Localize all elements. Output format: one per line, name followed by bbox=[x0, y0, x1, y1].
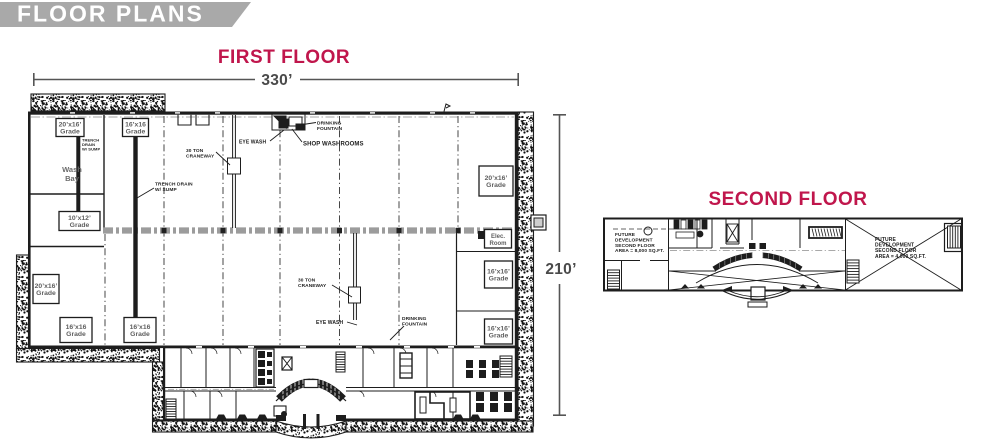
svg-text:Grade: Grade bbox=[60, 129, 80, 136]
svg-text:Wash: Wash bbox=[62, 165, 82, 174]
svg-text:30 TON: 30 TON bbox=[186, 148, 204, 154]
svg-text:Grade: Grade bbox=[486, 182, 506, 189]
svg-text:16’x16: 16’x16 bbox=[125, 122, 146, 129]
svg-text:16’x16: 16’x16 bbox=[66, 324, 87, 331]
svg-text:SHOP WASHROOMS: SHOP WASHROOMS bbox=[303, 142, 364, 148]
svg-text:AREA = 8,000 SQ.FT.: AREA = 8,000 SQ.FT. bbox=[615, 248, 664, 254]
svg-text:16’x16’: 16’x16’ bbox=[487, 269, 510, 276]
svg-text:TRENCH DRAIN: TRENCH DRAIN bbox=[155, 182, 193, 188]
svg-text:Grade: Grade bbox=[126, 129, 146, 136]
svg-text:20’x16’: 20’x16’ bbox=[35, 283, 58, 290]
svg-text:330’: 330’ bbox=[261, 72, 292, 89]
svg-text:Grade: Grade bbox=[489, 333, 509, 340]
svg-text:FIRST FLOOR: FIRST FLOOR bbox=[218, 47, 350, 68]
svg-text:Grade: Grade bbox=[489, 276, 509, 283]
svg-text:Grade: Grade bbox=[70, 222, 90, 229]
svg-text:Elec.: Elec. bbox=[491, 234, 505, 240]
svg-text:CRANEWAY: CRANEWAY bbox=[186, 153, 215, 159]
svg-text:16’x16’: 16’x16’ bbox=[487, 326, 510, 333]
svg-text:Room: Room bbox=[490, 241, 507, 247]
svg-text:SECOND FLOOR: SECOND FLOOR bbox=[615, 243, 655, 249]
svg-text:Grade: Grade bbox=[66, 331, 86, 338]
svg-text:EYE WASH: EYE WASH bbox=[239, 140, 266, 146]
svg-text:20’x16’: 20’x16’ bbox=[485, 175, 508, 182]
svg-text:DRINKING: DRINKING bbox=[402, 316, 427, 322]
svg-text:Bay: Bay bbox=[65, 174, 80, 183]
svg-text:10’x12’: 10’x12’ bbox=[68, 215, 91, 222]
svg-text:FOUNTAIN: FOUNTAIN bbox=[402, 321, 428, 327]
svg-text:210’: 210’ bbox=[545, 261, 576, 278]
svg-text:FUTURE: FUTURE bbox=[615, 232, 636, 238]
svg-text:FLOOR PLANS: FLOOR PLANS bbox=[17, 1, 204, 27]
svg-text:30 TON: 30 TON bbox=[298, 278, 316, 284]
svg-text:EYE WASH: EYE WASH bbox=[316, 320, 343, 326]
svg-text:Grade: Grade bbox=[36, 290, 56, 297]
svg-text:DEVELOPMENT: DEVELOPMENT bbox=[615, 237, 653, 243]
svg-text:20’x16’: 20’x16’ bbox=[59, 122, 82, 129]
svg-text:W/ SUMP: W/ SUMP bbox=[82, 147, 100, 152]
svg-text:16’x16: 16’x16 bbox=[130, 324, 151, 331]
svg-text:SECOND FLOOR: SECOND FLOOR bbox=[708, 189, 867, 210]
svg-text:AREA = 4,000 SQ.FT.: AREA = 4,000 SQ.FT. bbox=[875, 254, 927, 260]
svg-text:W/ SUMP: W/ SUMP bbox=[155, 187, 177, 193]
svg-text:CRANEWAY: CRANEWAY bbox=[298, 283, 327, 289]
svg-text:Grade: Grade bbox=[130, 331, 150, 338]
svg-text:FOUNTAIN: FOUNTAIN bbox=[317, 126, 343, 132]
svg-text:DRINKING: DRINKING bbox=[317, 121, 342, 127]
